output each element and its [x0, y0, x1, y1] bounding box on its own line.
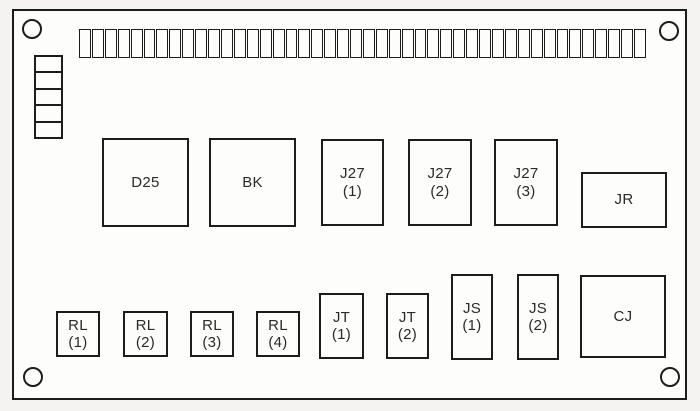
terminal-segment [247, 29, 259, 58]
terminal-segment [595, 29, 607, 58]
component-box-d25: D25 [102, 138, 189, 227]
terminal-segment [453, 29, 465, 58]
mounting-hole-top-left [22, 19, 42, 39]
component-sublabel: (1) [462, 317, 481, 334]
terminal-segment [557, 29, 569, 58]
terminal-segment [105, 29, 117, 58]
component-sublabel: (1) [68, 334, 87, 351]
side-stack-cell [36, 71, 61, 87]
component-label: BK [242, 174, 263, 191]
terminal-segment [544, 29, 556, 58]
component-box-jt-2: JT (2) [386, 293, 429, 359]
component-box-bk: BK [209, 138, 296, 227]
terminal-segment [518, 29, 530, 58]
component-label: RL [136, 317, 156, 334]
component-box-jt-1: JT (1) [319, 293, 364, 359]
terminal-segment [144, 29, 156, 58]
component-box-rl-3: RL (3) [190, 311, 234, 357]
component-label: D25 [131, 174, 159, 191]
component-box-j27-1: J27 (1) [321, 139, 384, 226]
terminal-segment [363, 29, 375, 58]
component-label: JS [529, 300, 547, 317]
component-label: JT [333, 309, 350, 326]
terminal-segment [582, 29, 594, 58]
component-sublabel: (1) [343, 183, 362, 200]
terminal-segment [311, 29, 323, 58]
terminal-segment [402, 29, 414, 58]
terminal-segment [118, 29, 130, 58]
terminal-segment [337, 29, 349, 58]
terminal-segment [286, 29, 298, 58]
terminal-segment [492, 29, 504, 58]
component-label: JT [399, 309, 416, 326]
terminal-segment [273, 29, 285, 58]
component-box-j27-3: J27 (3) [494, 139, 558, 226]
component-sublabel: (3) [516, 183, 535, 200]
terminal-segment [569, 29, 581, 58]
mounting-hole-bottom-left [23, 367, 43, 387]
terminal-segment [608, 29, 620, 58]
component-label: J27 [427, 165, 452, 182]
terminal-segment [221, 29, 233, 58]
terminal-segment [169, 29, 181, 58]
component-sublabel: (4) [268, 334, 287, 351]
component-box-rl-1: RL (1) [56, 311, 100, 357]
component-label: J27 [513, 165, 538, 182]
terminal-segment [466, 29, 478, 58]
side-stack-cell [36, 104, 61, 120]
component-label: JS [463, 300, 481, 317]
component-box-jr: JR [581, 172, 667, 228]
terminal-segment [505, 29, 517, 58]
component-sublabel: (3) [202, 334, 221, 351]
mounting-hole-top-right [659, 21, 679, 41]
terminal-segment [182, 29, 194, 58]
side-terminal-stack [34, 55, 63, 139]
component-box-js-1: JS (1) [451, 274, 493, 360]
side-stack-cell [36, 121, 61, 137]
component-label: RL [268, 317, 288, 334]
terminal-segment [389, 29, 401, 58]
component-sublabel: (2) [136, 334, 155, 351]
terminal-segment [208, 29, 220, 58]
component-label: CJ [614, 308, 633, 325]
mounting-hole-bottom-right [660, 367, 680, 387]
terminal-segment [531, 29, 543, 58]
component-layout-diagram: D25 BK J27 (1) J27 (2) J27 (3) JR RL (1)… [0, 0, 700, 411]
terminal-segment [298, 29, 310, 58]
component-label: RL [68, 317, 88, 334]
component-sublabel: (2) [528, 317, 547, 334]
terminal-segment [324, 29, 336, 58]
side-stack-cell [36, 57, 61, 71]
terminal-segment [195, 29, 207, 58]
terminal-segment [350, 29, 362, 58]
component-box-rl-4: RL (4) [256, 311, 300, 357]
component-box-j27-2: J27 (2) [408, 139, 472, 226]
terminal-segment [621, 29, 633, 58]
component-box-cj: CJ [580, 275, 666, 358]
component-box-rl-2: RL (2) [123, 311, 168, 357]
terminal-segment [427, 29, 439, 58]
terminal-segment [92, 29, 104, 58]
terminal-segment [634, 29, 646, 58]
component-label: JR [615, 191, 634, 208]
terminal-segment [131, 29, 143, 58]
terminal-segment [260, 29, 272, 58]
terminal-segment [156, 29, 168, 58]
terminal-segment [479, 29, 491, 58]
component-label: J27 [340, 165, 365, 182]
terminal-segment [415, 29, 427, 58]
terminal-strip [79, 29, 646, 58]
component-label: RL [202, 317, 222, 334]
side-stack-cell [36, 88, 61, 104]
terminal-segment [376, 29, 388, 58]
component-box-js-2: JS (2) [517, 274, 559, 360]
terminal-segment [440, 29, 452, 58]
terminal-segment [79, 29, 91, 58]
terminal-segment [234, 29, 246, 58]
component-sublabel: (2) [430, 183, 449, 200]
component-sublabel: (2) [398, 326, 417, 343]
component-sublabel: (1) [332, 326, 351, 343]
